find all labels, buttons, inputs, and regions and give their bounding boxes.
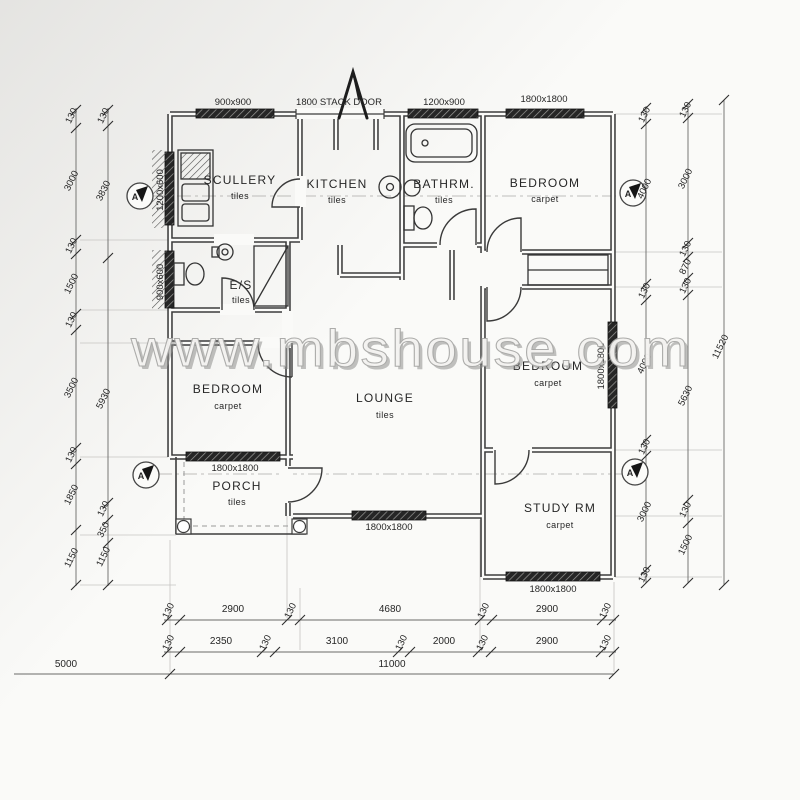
section-marker-right-bottom: A xyxy=(622,459,648,485)
room-label-bedroom-top: BEDROOM xyxy=(510,176,580,190)
dim-bottom-upper-5: 2900 xyxy=(536,604,559,615)
section-marker-left-top: A xyxy=(127,183,153,209)
watermark: www.mbshouse.com www.mbshouse.com xyxy=(130,320,694,381)
label-left-scullery-window: 1200x600 xyxy=(155,169,166,211)
room-finish-porch: tiles xyxy=(228,497,246,507)
label-lounge-window: 1800x1800 xyxy=(365,522,412,533)
section-letter: A xyxy=(625,189,632,199)
dim-bottom-upper-1: 2900 xyxy=(222,604,245,615)
dim-bottom-lower-3: 3100 xyxy=(326,636,349,647)
scanned-floor-plan-page: A A A A SCULLERY tiles KITCHEN tiles BAT… xyxy=(0,0,800,800)
label-stack-door: 1800 STACK DOOR xyxy=(296,97,382,108)
room-label-bathroom: BATHRM. xyxy=(413,177,475,191)
label-top-bathroom-window: 1200x900 xyxy=(423,97,465,108)
room-label-kitchen: KITCHEN xyxy=(306,177,367,191)
lounge-window xyxy=(352,511,426,520)
section-marker-left-bottom: A xyxy=(133,462,159,488)
section-letter: A xyxy=(627,468,634,478)
section-letter: A xyxy=(132,192,139,202)
room-finish-bedroom-left: carpet xyxy=(214,401,242,411)
room-finish-bedroom-top: carpet xyxy=(531,194,559,204)
room-label-lounge: LOUNGE xyxy=(356,391,414,405)
dim-bottom-lower-1: 2350 xyxy=(210,636,233,647)
scullery-left-window xyxy=(165,152,174,225)
room-label-porch: PORCH xyxy=(212,479,261,493)
study-window xyxy=(506,572,600,581)
section-letter: A xyxy=(138,471,145,481)
label-porch-window: 1800x1800 xyxy=(211,463,258,474)
dim-bottom-upper-3: 4680 xyxy=(379,604,402,615)
room-finish-study: carpet xyxy=(546,520,574,530)
room-finish-bathroom: tiles xyxy=(435,195,453,205)
dim-bottom-lower-5: 2000 xyxy=(433,636,456,647)
room-finish-kitchen: tiles xyxy=(328,195,346,205)
floor-plan-svg: A A A A SCULLERY tiles KITCHEN tiles BAT… xyxy=(0,0,800,800)
scullery-top-window xyxy=(196,109,274,118)
ensuite-left-window xyxy=(165,251,174,308)
room-label-bedroom-left: BEDROOM xyxy=(193,382,263,396)
dim-bottom-lower-7: 2900 xyxy=(536,636,559,647)
room-finish-lounge: tiles xyxy=(376,410,394,420)
room-label-study: STUDY RM xyxy=(524,501,596,515)
label-left-ensuite-window: 900x600 xyxy=(155,264,166,300)
dim-bottom-total: 11000 xyxy=(378,659,406,670)
porch-window xyxy=(186,452,280,461)
label-study-window: 1800x1800 xyxy=(529,584,576,595)
room-label-ensuite: E/S xyxy=(230,278,253,292)
bedroom-top-window xyxy=(506,109,584,118)
watermark-text: www.mbshouse.com xyxy=(130,320,691,378)
label-top-scullery-window: 900x900 xyxy=(215,97,251,108)
room-finish-scullery: tiles xyxy=(231,191,249,201)
dim-bottom-left-ext: 5000 xyxy=(55,659,78,670)
bathroom-top-window xyxy=(408,109,478,118)
room-finish-ensuite: tiles xyxy=(232,295,250,305)
label-top-bedroom-window: 1800x1800 xyxy=(520,94,567,105)
room-label-scullery: SCULLERY xyxy=(204,173,277,187)
